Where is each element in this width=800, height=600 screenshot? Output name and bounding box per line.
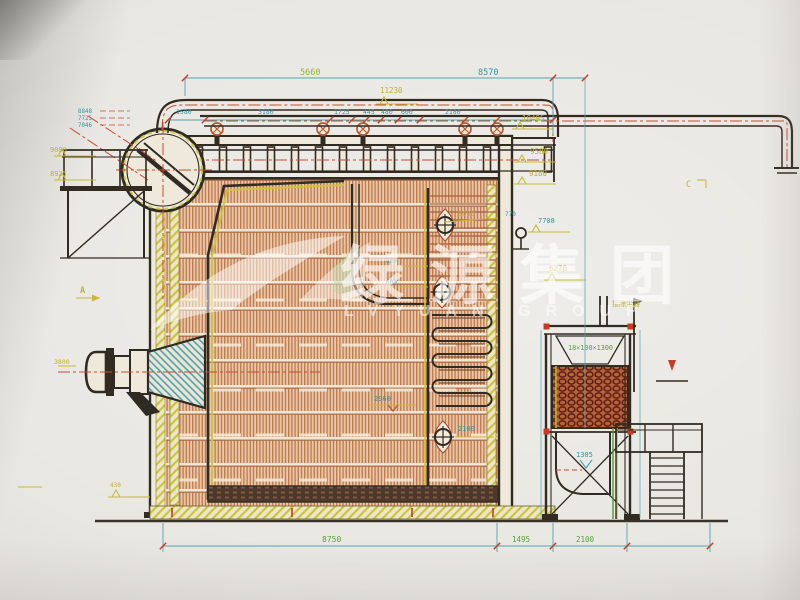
elev-10495: 10495 <box>522 114 545 123</box>
view-marker-c: C <box>686 180 691 190</box>
top-beam <box>150 136 512 145</box>
dim-top-left: 5660 <box>300 68 320 78</box>
dim-1495: 1495 <box>512 535 530 544</box>
elev-8925: 8925 <box>50 170 67 178</box>
view-marker-a: A <box>80 286 85 296</box>
photographed-boiler-drawing: 5660 8570 11230 1580 3180 1725 445 480 6… <box>0 0 800 600</box>
elev-7708: 7708 <box>538 217 555 225</box>
dim-row-5: 600 <box>401 108 413 116</box>
dim-row-4: 480 <box>381 108 393 116</box>
dim-row-2: 1725 <box>334 108 350 116</box>
datum-triangle <box>668 360 676 371</box>
dim-770: 770 <box>505 211 516 218</box>
dim-2100-bottom: 2100 <box>576 535 595 544</box>
elev-11230: 11230 <box>380 86 403 95</box>
photo-edge-shadow <box>760 0 800 600</box>
economizer-coil <box>552 366 628 428</box>
elev-9580: 9580 <box>530 147 549 156</box>
watermark-en: LVYUAN GROUP <box>344 303 652 320</box>
dim-2100-mid: 2100 <box>458 425 475 433</box>
elev-left-small-0: 8848 <box>78 109 92 115</box>
boiler-general-arrangement: 5660 8570 11230 1580 3180 1725 445 480 6… <box>0 0 800 600</box>
elev-9080: 9080 <box>50 146 67 154</box>
dim-2960: 2960 <box>374 395 391 403</box>
chain-grate <box>208 486 498 502</box>
dim-top-right: 8570 <box>478 68 498 78</box>
elev-1305: 1305 <box>576 451 593 459</box>
rear-column <box>499 136 512 516</box>
elev-left-small-2: 7046 <box>78 123 92 129</box>
dim-row-1: 3180 <box>258 108 274 116</box>
dim-row-0: 1580 <box>176 108 192 116</box>
dim-8750: 8750 <box>322 535 341 544</box>
rear-valve <box>516 228 526 238</box>
dim-3800: 3800 <box>54 358 70 366</box>
elev-8600: 8600 <box>458 210 475 218</box>
elev-430: 430 <box>110 482 121 489</box>
elev-9180: 9180 <box>529 169 548 178</box>
economizer-tube-spec: 18×100×1300 <box>568 344 613 352</box>
economizer <box>541 296 640 520</box>
dim-row-6: 2180 <box>445 108 461 116</box>
elev-left-small-1: 7725 <box>78 116 92 122</box>
photo-corner-shadow <box>0 0 90 60</box>
dim-row-3: 445 <box>363 108 375 116</box>
